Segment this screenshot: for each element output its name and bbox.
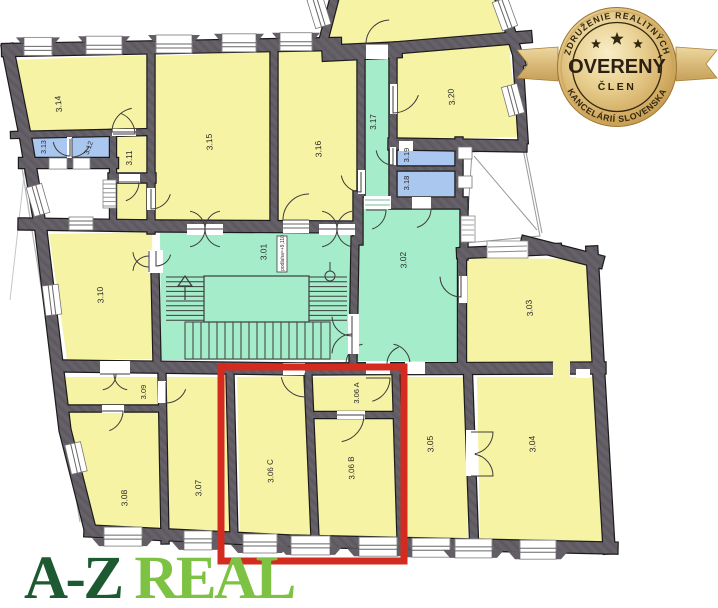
- svg-text:3.18: 3.18: [402, 176, 411, 191]
- svg-text:3.01: 3.01: [258, 243, 268, 260]
- svg-text:3.14: 3.14: [53, 95, 64, 113]
- svg-text:3.15: 3.15: [204, 133, 215, 150]
- svg-text:3.17: 3.17: [369, 114, 378, 130]
- svg-text:3.02: 3.02: [398, 251, 409, 268]
- svg-text:3.16: 3.16: [313, 140, 324, 157]
- svg-text:3.04: 3.04: [527, 435, 538, 452]
- svg-text:3.06 B: 3.06 B: [347, 456, 357, 479]
- svg-text:3.19: 3.19: [402, 148, 411, 163]
- svg-text:A-Z REAL: A-Z REAL: [24, 545, 295, 603]
- svg-text:3.07: 3.07: [193, 479, 204, 496]
- svg-text:3.05: 3.05: [425, 435, 436, 452]
- svg-text:3.06 C: 3.06 C: [266, 459, 276, 483]
- svg-text:OVERENÝ: OVERENÝ: [568, 54, 666, 78]
- svg-text:3.09: 3.09: [139, 385, 148, 400]
- svg-text:3.13: 3.13: [41, 140, 48, 154]
- svg-text:podlaha=+9,110: podlaha=+9,110: [280, 235, 286, 271]
- svg-text:3.20: 3.20: [446, 88, 457, 106]
- svg-text:ČLEN: ČLEN: [598, 80, 637, 93]
- svg-text:3.08: 3.08: [119, 489, 130, 506]
- svg-text:3.11: 3.11: [125, 150, 134, 166]
- svg-text:3.10: 3.10: [95, 286, 106, 303]
- svg-text:3.06 A: 3.06 A: [352, 382, 361, 403]
- svg-text:3.03: 3.03: [524, 299, 535, 317]
